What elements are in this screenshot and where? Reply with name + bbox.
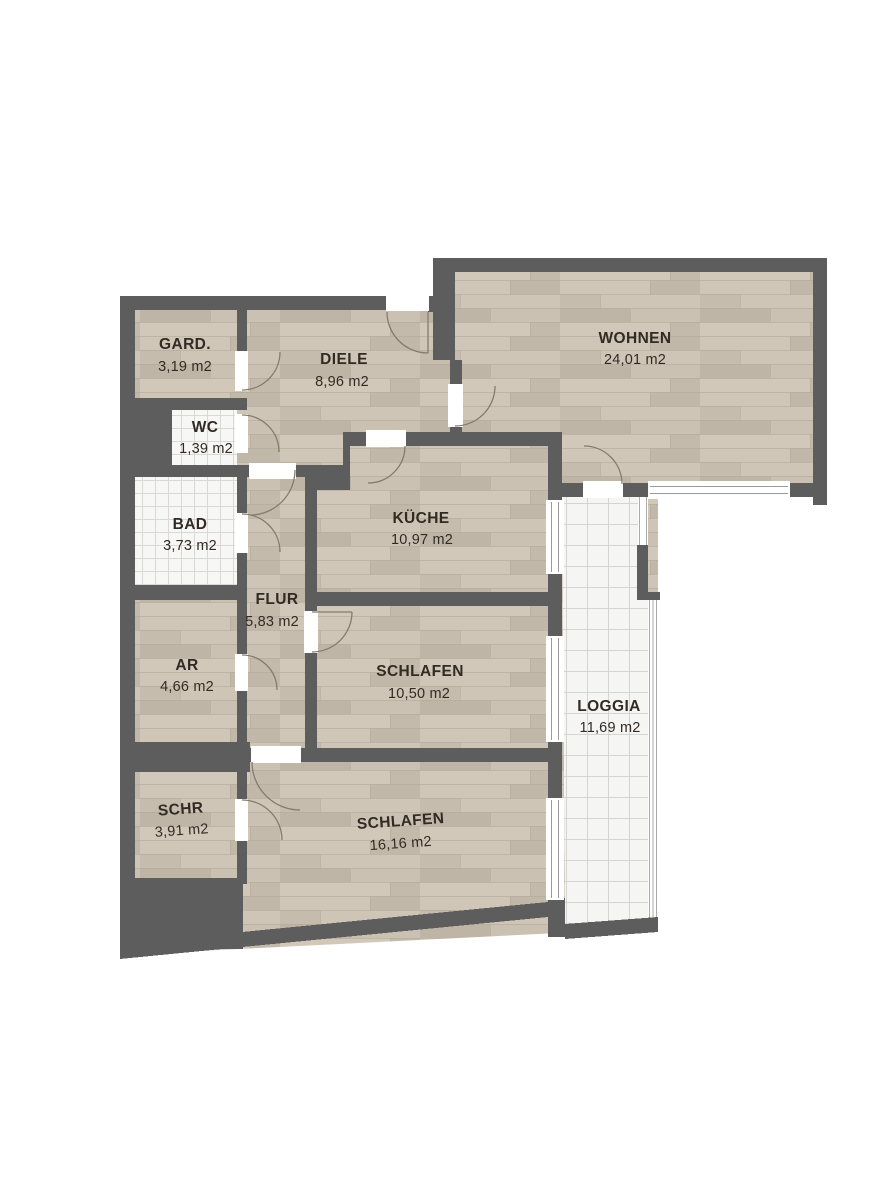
loggia-door-wall-left <box>562 483 584 497</box>
ar-schr-wall <box>120 742 250 772</box>
room-label-loggia: LOGGIA <box>577 698 641 715</box>
kueche-top-stub <box>343 432 350 467</box>
room-area-diele: 8,96 m2 <box>315 374 369 390</box>
schlafen1-window <box>546 636 564 742</box>
schlafen2-window <box>546 798 564 900</box>
kueche-wall-top-left <box>350 432 367 446</box>
floorplan-page: GARD. 3,19 m2 DIELE 8,96 m2 WOHNEN 24,01… <box>0 0 896 1200</box>
room-label-ar: AR <box>175 657 198 674</box>
wc-wall-bottom <box>120 465 250 477</box>
flur-schlafen1-wall-lower <box>305 652 317 752</box>
corner-block-bottom-right <box>548 898 565 937</box>
loggia-pillar <box>637 545 648 598</box>
room-label-wc: WC <box>192 419 219 436</box>
room-area-schlafen1: 10,50 m2 <box>388 686 450 702</box>
wohnen-window <box>648 481 790 499</box>
wohnen-window-pier <box>790 483 815 497</box>
floorplan-drawing: GARD. 3,19 m2 DIELE 8,96 m2 WOHNEN 24,01… <box>0 0 896 1200</box>
schr-wall-right-lower <box>237 840 247 884</box>
kueche-wall-top-right <box>405 432 548 446</box>
room-label-schlafen1: SCHLAFEN <box>376 663 464 680</box>
kueche-wall-left <box>305 490 317 592</box>
east-wall-pier-2 <box>548 572 562 638</box>
room-label-diele: DIELE <box>320 351 368 368</box>
junction-block <box>305 465 350 490</box>
loggia-door-wall-right <box>622 483 648 497</box>
gard-wall-bottom <box>120 398 247 410</box>
gard-wall-right <box>237 310 247 352</box>
loggia-pillar-foot <box>637 592 660 600</box>
schr-wall-right-upper <box>237 762 247 800</box>
room-area-ar: 4,66 m2 <box>160 679 214 695</box>
room-label-kueche: KÜCHE <box>392 510 449 527</box>
room-area-bad: 3,73 m2 <box>163 538 217 554</box>
room-area-wc: 1,39 m2 <box>179 441 233 457</box>
kueche-window <box>546 500 564 574</box>
wohnen-wall-top <box>433 258 827 272</box>
apartment-wood-floor <box>120 258 827 955</box>
room-label-gard: GARD. <box>159 336 211 353</box>
wohnen-wall-left <box>433 258 455 360</box>
room-area-kueche: 10,97 m2 <box>391 532 453 548</box>
wohnen-wall-right <box>813 258 827 505</box>
room-area-wohnen: 24,01 m2 <box>604 352 666 368</box>
east-wall-pier-1 <box>548 432 562 502</box>
wc-wall-left-block <box>135 410 172 465</box>
room-area-loggia: 11,69 m2 <box>580 720 641 736</box>
outer-wall-bottom-left-block <box>120 878 243 949</box>
schlafen2-wall-top <box>300 748 562 762</box>
kueche-wall-bottom <box>305 592 562 606</box>
room-area-gard: 3,19 m2 <box>158 359 212 375</box>
ar-wall-right-lower <box>237 690 247 748</box>
outer-wall-top-left <box>120 296 387 310</box>
room-label-wohnen: WOHNEN <box>598 330 671 347</box>
room-label-bad: BAD <box>173 516 208 533</box>
outer-wall-left <box>120 296 135 944</box>
wohnen-door-stub <box>450 360 462 386</box>
bad-wall-right-upper <box>237 477 247 514</box>
room-area-flur: 5,83 m2 <box>245 614 299 630</box>
room-label-schr: SCHR <box>157 799 204 819</box>
floors <box>120 258 827 955</box>
room-label-flur: FLUR <box>256 591 299 608</box>
bad-wall-bottom <box>120 585 247 600</box>
